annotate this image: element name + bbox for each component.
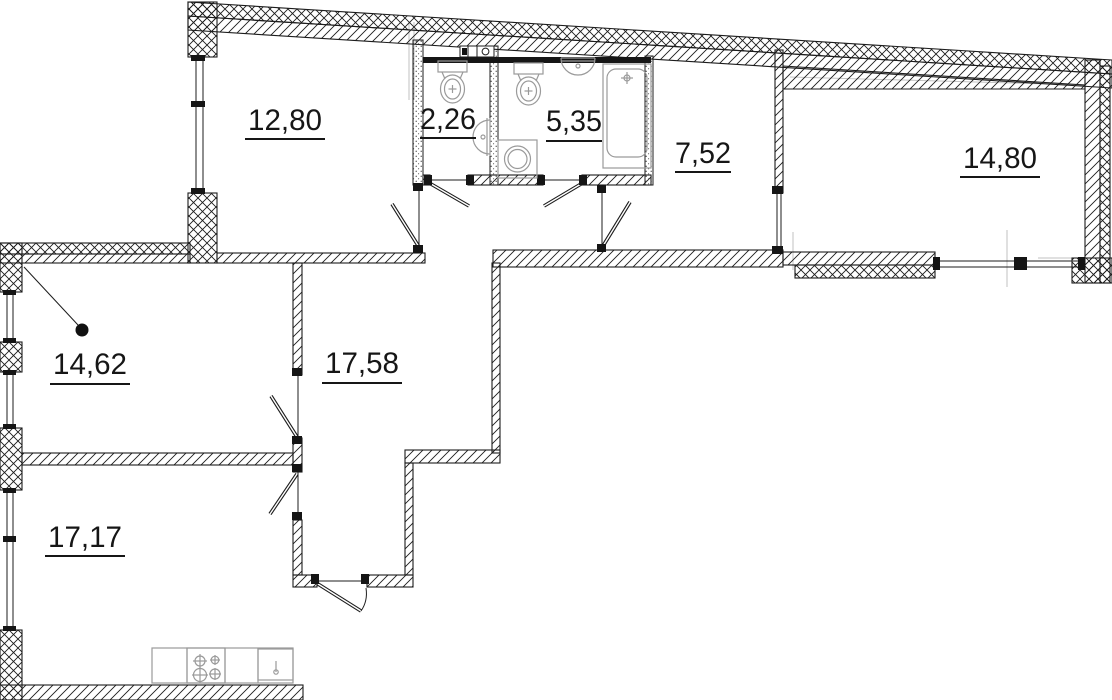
room-region-17-17 <box>22 465 293 685</box>
room-area-label-12-80: 12,80 <box>248 104 322 137</box>
room-area-label-17-58: 17,58 <box>325 347 399 380</box>
room-area-label-5-35: 5,35 <box>546 105 602 138</box>
floor-plan-drawing: 12,80 2,26 5,35 7,52 14,80 14,62 17,58 1… <box>0 0 1112 700</box>
wall-bottom <box>0 685 303 700</box>
wall-1462-1717-divider <box>22 453 293 465</box>
room-area-label-7-52: 7,52 <box>675 137 731 170</box>
wall-room1280-bottom <box>217 253 425 263</box>
room-area-label-17-17: 17,17 <box>48 521 122 554</box>
wall-hall752-bottom <box>493 250 783 267</box>
room-area-label-14-62: 14,62 <box>53 348 127 381</box>
room-area-label-14-80: 14,80 <box>963 142 1037 175</box>
marker-dot <box>76 324 89 337</box>
wall-right <box>1085 60 1100 283</box>
room-area-label-2-26: 2,26 <box>420 103 476 136</box>
room-region-14-80 <box>783 89 1085 252</box>
room-region-12-80 <box>217 30 413 253</box>
floor-plan: 12,80 2,26 5,35 7,52 14,80 14,62 17,58 1… <box>0 0 1112 700</box>
